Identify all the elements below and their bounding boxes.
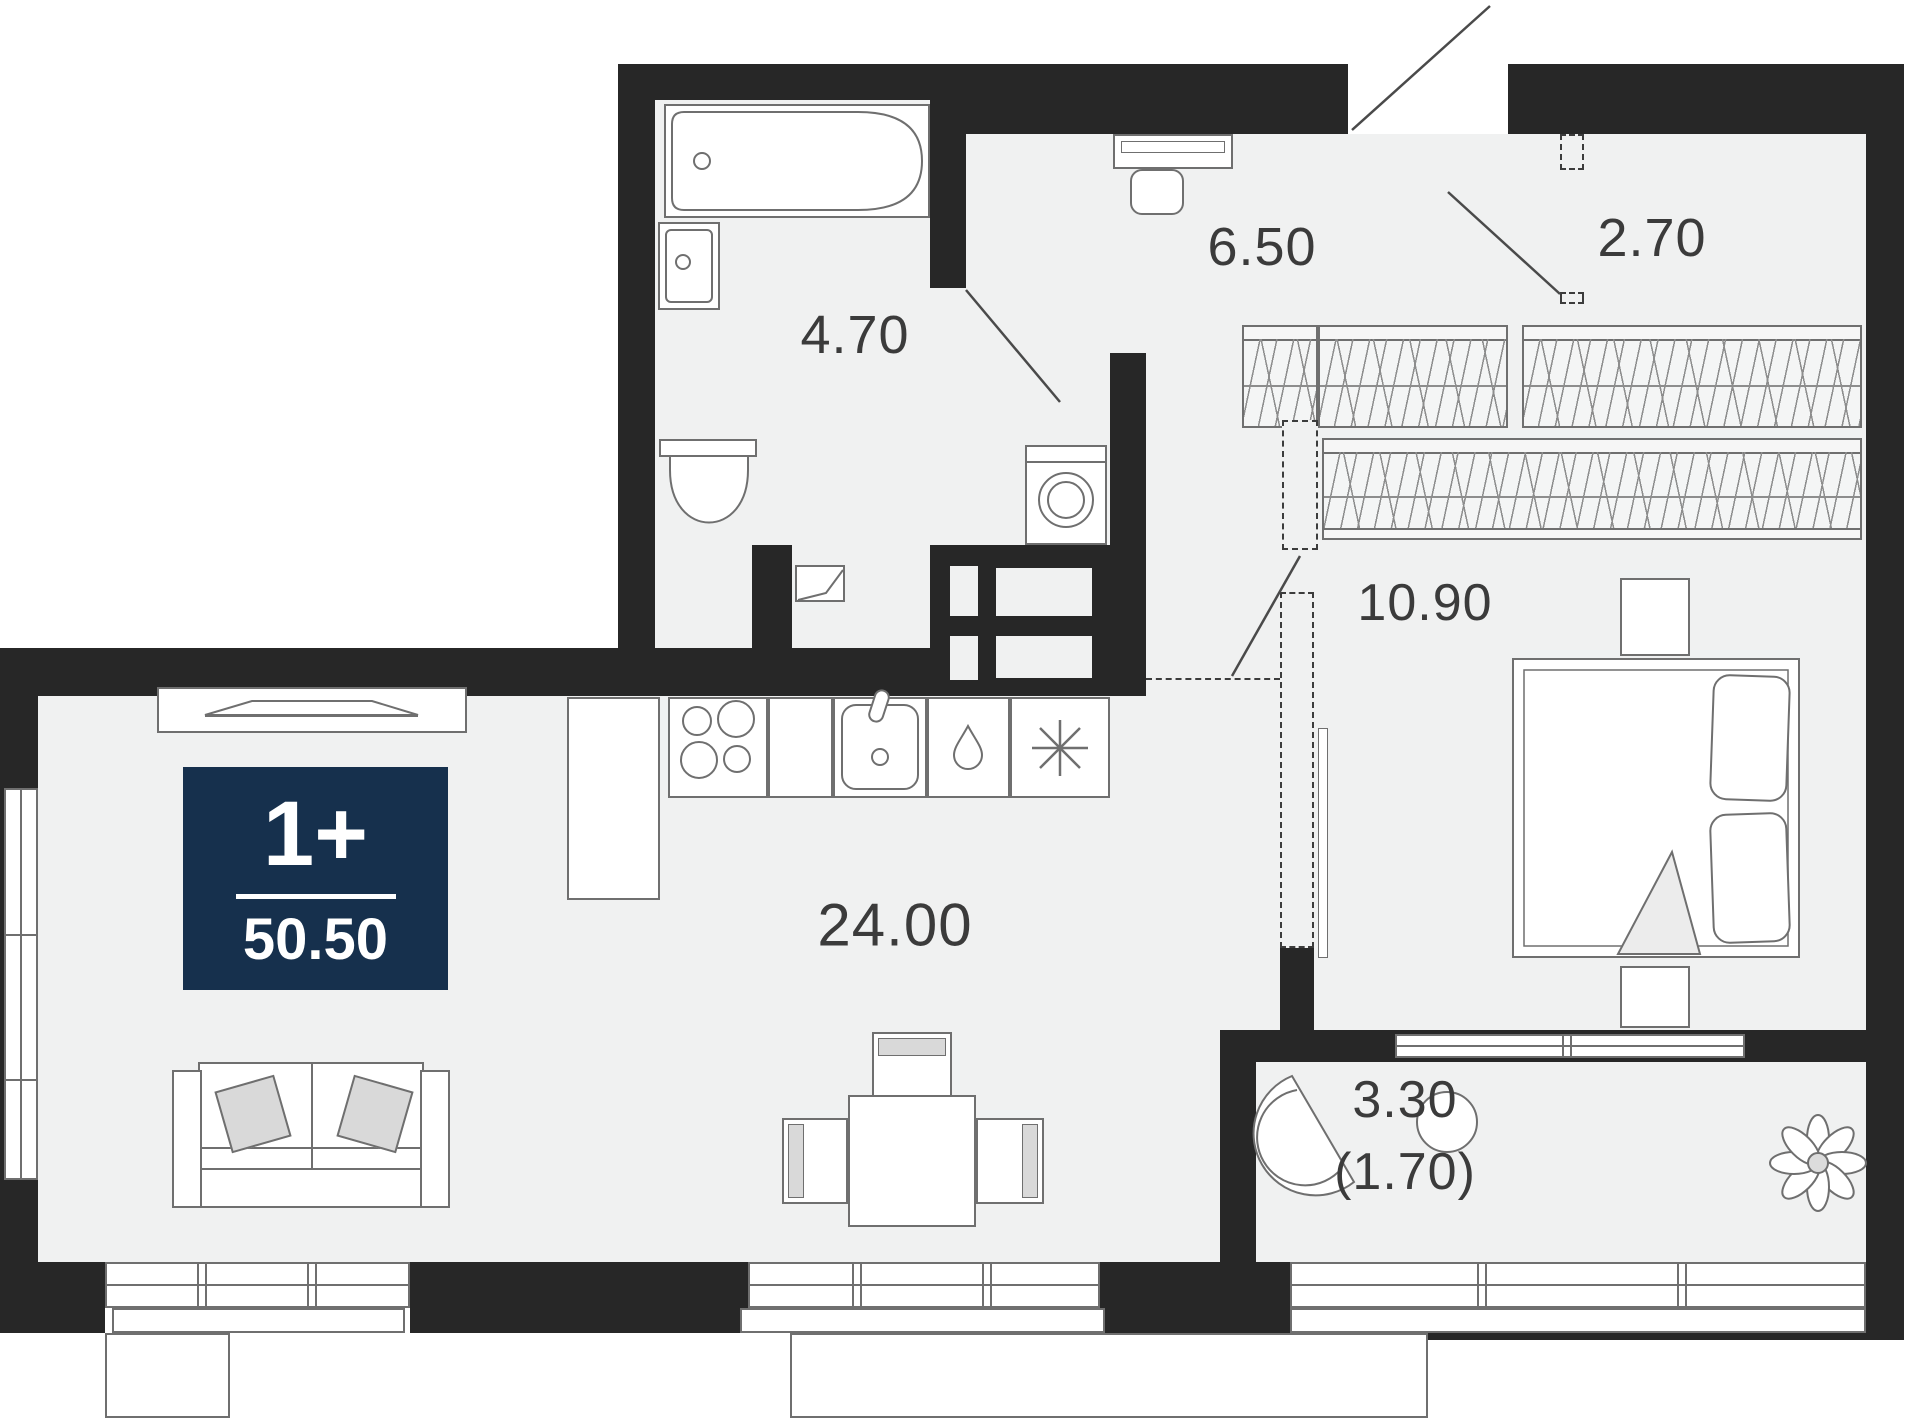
- dashed-partition-top: [1282, 420, 1318, 550]
- wardrobe: [1242, 325, 1318, 428]
- bathtub: [664, 104, 930, 218]
- wall-kitchen-right: [1110, 353, 1146, 696]
- dashed-door-pocket: [1560, 134, 1584, 170]
- dashed-partition-side: [1280, 592, 1314, 948]
- entry-door-swing: [1352, 6, 1490, 130]
- wall-balcony-left: [1220, 1030, 1256, 1333]
- wall-bath-niche: [752, 545, 792, 696]
- nightstand: [1620, 578, 1690, 656]
- duct-cell: [996, 636, 1092, 678]
- wardrobe-rail: [1524, 385, 1860, 387]
- kitchen-counter: [768, 697, 833, 798]
- washing-machine: [1025, 445, 1107, 545]
- room-label-balcony-coeff: (1.70): [1334, 1142, 1476, 1202]
- wall-bath-left: [618, 100, 655, 655]
- wall-bottom-right: [1100, 1262, 1220, 1333]
- windowsill: [1290, 1308, 1866, 1333]
- duct-cell: [996, 568, 1092, 616]
- badge-rooms-label: 1+: [263, 788, 368, 880]
- dining-chair-right: [976, 1118, 1044, 1204]
- wall-bottom-left: [38, 1262, 105, 1333]
- badge-divider: [236, 894, 396, 899]
- window-living-left: [105, 1262, 410, 1308]
- sofa-armrest: [172, 1070, 202, 1208]
- wardrobe-hatch: [1244, 339, 1316, 426]
- window-bedroom-balcony: [1395, 1034, 1745, 1058]
- sofa-armrest: [420, 1070, 450, 1208]
- fridge-counter: [1010, 697, 1110, 798]
- room-label-closet: 2.70: [1597, 207, 1706, 269]
- wall-balcony-window-left: [1256, 1262, 1290, 1333]
- window-balcony: [1290, 1262, 1866, 1308]
- dishwasher-counter: [927, 697, 1010, 798]
- sofa-seam: [200, 1168, 422, 1170]
- room-label-bedroom: 10.90: [1357, 573, 1492, 633]
- wardrobe-hatch: [1524, 339, 1860, 426]
- sofa-seam: [311, 1064, 313, 1168]
- bed: [1512, 658, 1800, 958]
- windowsill: [740, 1308, 1105, 1333]
- wardrobe-hatch: [1320, 339, 1506, 426]
- entry-stool: [1130, 169, 1184, 215]
- window-living-mid: [748, 1262, 1100, 1308]
- sink-counter: [833, 697, 927, 798]
- bath-cabinet: [795, 565, 845, 602]
- tv-console: [157, 687, 467, 733]
- dashed-partition-line: [1146, 678, 1280, 680]
- room-label-living: 24.00: [817, 891, 972, 960]
- badge-total-area: 50.50: [243, 911, 388, 969]
- wardrobe: [1522, 325, 1862, 428]
- nightstand: [1620, 966, 1690, 1028]
- dining-chair-top: [872, 1032, 952, 1098]
- wardrobe-rail: [1320, 385, 1506, 387]
- chair-backrest: [1022, 1124, 1038, 1198]
- wardrobe: [1322, 438, 1862, 540]
- dining-chair-left: [782, 1118, 848, 1204]
- wall-living-top: [0, 648, 936, 696]
- wardrobe-base: [1324, 528, 1860, 538]
- window-left: [4, 788, 38, 1180]
- apartment-badge: 1+ 50.50: [183, 767, 448, 990]
- kitchen-tall-unit: [567, 697, 660, 900]
- bath-sink: [658, 222, 720, 310]
- wall-right: [1866, 64, 1904, 1340]
- dining-table: [848, 1095, 976, 1227]
- wall-top-hall: [936, 64, 1348, 134]
- wardrobe: [1318, 325, 1508, 428]
- balcony-outline-mid: [790, 1333, 1428, 1418]
- sliding-door-leaf: [1318, 728, 1328, 958]
- wall-bottom-mid: [410, 1262, 748, 1333]
- wall-partition-stub: [1280, 948, 1314, 1032]
- duct-cell: [950, 636, 978, 680]
- room-label-balcony: 3.30: [1352, 1070, 1457, 1130]
- chair-backrest: [788, 1124, 804, 1198]
- balcony-outline-left: [105, 1333, 230, 1418]
- wardrobe-hatch: [1324, 452, 1860, 528]
- room-label-hallway: 6.50: [1207, 216, 1316, 278]
- wall-top-bath: [618, 64, 936, 100]
- wardrobe-rail: [1244, 385, 1316, 387]
- wardrobe-rail: [1324, 496, 1860, 498]
- stove-counter: [668, 697, 768, 798]
- floor-plan: 4.70 6.50 2.70 10.90 24.00 3.30 (1.70) 1…: [0, 0, 1914, 1422]
- windowsill: [112, 1308, 405, 1333]
- room-label-bathroom: 4.70: [800, 304, 909, 366]
- duct-cell: [950, 566, 978, 616]
- entry-console-inner: [1121, 141, 1225, 153]
- wall-top-right: [1508, 64, 1904, 134]
- dashed-door-bracket: [1560, 292, 1584, 304]
- chair-backrest: [878, 1038, 946, 1056]
- wall-bath-divider: [930, 100, 966, 288]
